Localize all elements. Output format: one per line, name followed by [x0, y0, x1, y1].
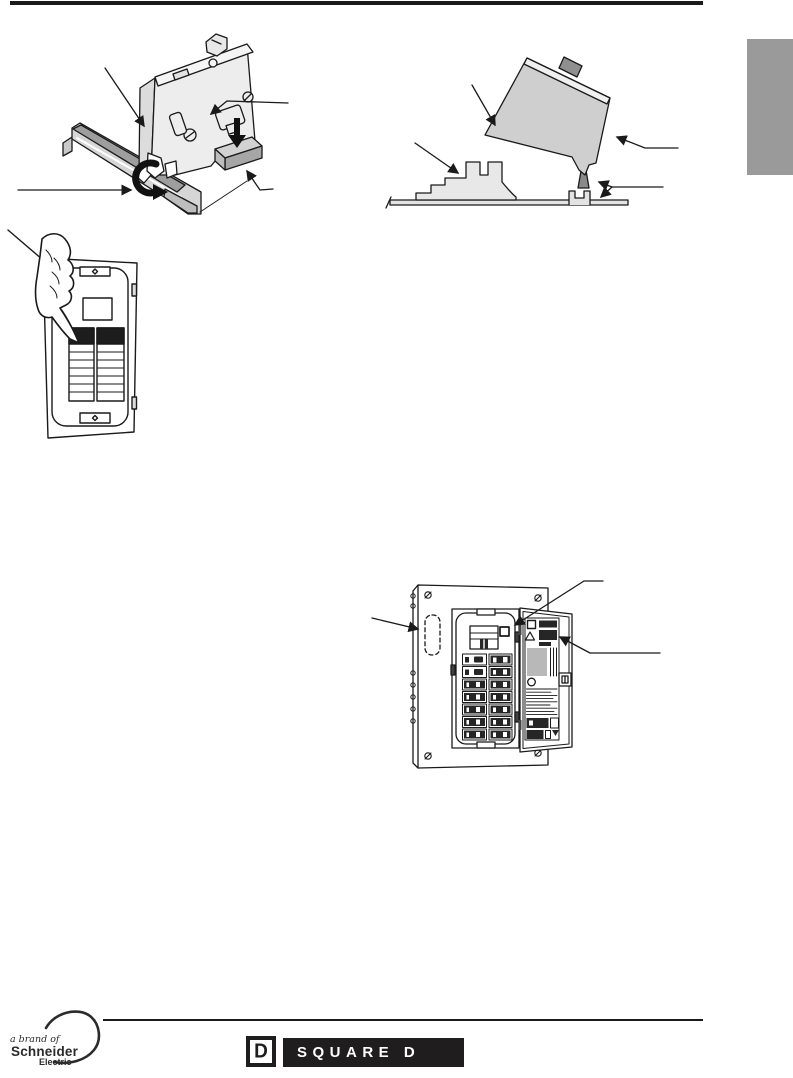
interior-trim	[451, 609, 519, 748]
leader-breaker	[105, 68, 144, 126]
leader-breaker-edge	[617, 137, 678, 148]
figure-breaker-rail-mounting	[15, 25, 300, 225]
main-breaker-opening	[83, 298, 112, 320]
hand-leader-line	[8, 230, 43, 260]
schneider-sub-brand: Electric	[39, 1057, 72, 1067]
main-breaker	[470, 626, 498, 649]
door-label	[525, 618, 559, 740]
top-rule	[10, 1, 703, 5]
figure-breaker-tilt-side-view	[383, 42, 683, 222]
door-latch	[559, 673, 571, 686]
leader-clip	[247, 171, 273, 190]
square-d-wordmark-bar: SQUARE D	[283, 1038, 464, 1067]
right-margin-section-tab	[747, 39, 793, 175]
circuit-breaker-tilted	[485, 57, 610, 175]
leader-jaw	[415, 143, 458, 173]
leader-rail-top	[599, 182, 663, 187]
footer-rule	[103, 1019, 703, 1021]
square-d-wordmark: SQUARE D	[297, 1044, 420, 1061]
figure-hand-pressing-cover	[2, 220, 162, 450]
leader-rail-bottom	[601, 187, 612, 197]
leader-breaker	[472, 85, 495, 125]
square-d-emblem-letter: D	[254, 1042, 268, 1062]
square-d-emblem: D	[246, 1036, 276, 1067]
open-door	[519, 608, 573, 752]
square-d-logo: D SQUARE D	[246, 1036, 464, 1067]
line-side-jaw	[416, 162, 516, 200]
leader-knockout	[372, 618, 418, 629]
schneider-electric-logo: a brand of Schneider Electric	[2, 1003, 114, 1073]
instruction-sheet-page: a brand of Schneider Electric D SQUARE D	[0, 0, 793, 1078]
figure-load-center-open-door	[363, 562, 663, 787]
leader-door-label	[560, 637, 660, 653]
